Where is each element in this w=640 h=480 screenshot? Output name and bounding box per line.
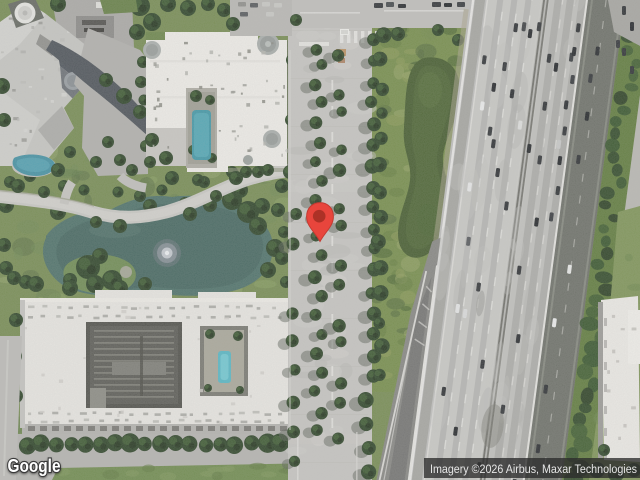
svg-text:Google: Google [8, 456, 61, 476]
svg-text:Imagery ©2026 Airbus, Maxar Te: Imagery ©2026 Airbus, Maxar Technologies [430, 462, 637, 476]
